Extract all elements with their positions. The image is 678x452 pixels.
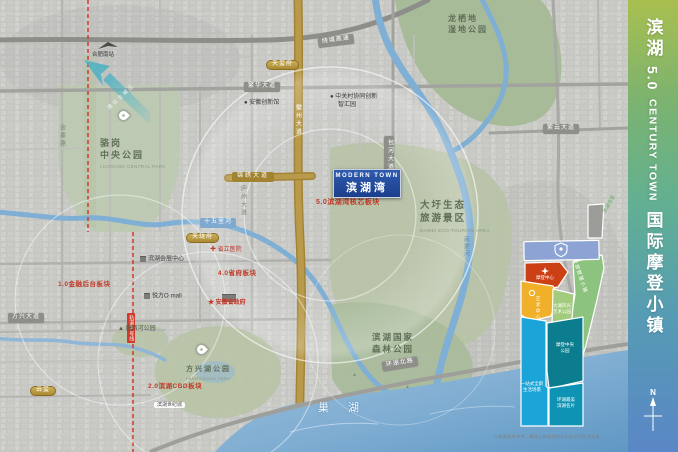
road-name-huizhou: 徽州大道 [293, 104, 301, 136]
park-label-luogang-en: LUOGANG CENTRAL PARK [100, 164, 166, 170]
title-number: 5.0 [645, 66, 661, 91]
lake-label: 巢 湖 [318, 402, 367, 416]
title-sidebar: 滨湖5.0CENTURY TOWN国际摩登小镇 N [628, 0, 678, 452]
road-badge-ziyun: 紫云大道 [543, 124, 579, 134]
park-label-forest-1: 滨湖国家 [372, 332, 414, 343]
branded-badge-tianlongfu: 天珑府 [186, 233, 219, 243]
poi-zgc-2: 智汇园 [338, 102, 356, 110]
park-label-daxu-2: 旅游景区 [420, 213, 466, 225]
poi-mall: 悦方O·mall [144, 293, 182, 301]
road-badge-fanhua: 繁华大道 [244, 82, 280, 92]
inset-caption: 示意图仅供参考，最终以政府规划及实际交付信息为准 [494, 433, 623, 439]
tree-icon: ▲ [352, 372, 357, 378]
city-map: 通往主城区 合肥南站 绕城高速 紫云大道 繁华大道 锦绣大道 环湖北路 方兴大道… [0, 0, 628, 452]
poi-government: ★ 安徽省政府 [208, 300, 246, 308]
title-zh-1: 滨湖 [644, 18, 663, 60]
title-zh-2: 国际摩登小镇 [644, 211, 663, 337]
compass: N [642, 388, 664, 438]
north-arrow-icon [642, 397, 664, 433]
road-badge-fangxing: 方兴大道 [8, 313, 44, 323]
map-poster: 通往主城区 合肥南站 绕城高速 紫云大道 繁华大道 锦绣大道 环湖北路 方兴大道… [0, 0, 678, 452]
inset-block-cyan [521, 317, 548, 426]
branded-badge-yunxi: 云玺 [30, 386, 56, 396]
park-label-daxu-1: 大圩生态 [420, 200, 466, 212]
river-label-shiwuli: 十五里河 [200, 218, 236, 228]
building-icon [140, 256, 146, 262]
sector-label-2: 2.0滨湖CBD板块 [148, 383, 202, 391]
sector-label-1: 1.0金融后台板块 [58, 281, 111, 289]
project-name-cn: 滨湖湾 [334, 179, 400, 195]
poi-hospital: ✚ 省立医院 [210, 247, 242, 255]
inset-label-cyan: 一站式全龄生活场景 [512, 381, 552, 393]
park-label-forest-2: 森林公园 [372, 344, 414, 355]
building-icon [144, 293, 150, 299]
hospital-cross-icon: ✚ 省立医院 [210, 247, 242, 253]
park-label-daxu-en: DAWEI ECO-TOURISM AREA [420, 228, 490, 234]
compass-n-label: N [642, 388, 664, 397]
inset-label-red: 摩登中心 [528, 275, 562, 281]
inset-label-teal: 摩登中央公园 [547, 342, 583, 354]
road-name-jinzhai: 金寨路 [57, 124, 65, 148]
project-badge: MODERN TOWN 滨湖湾 [333, 169, 401, 198]
poi-station-label: 合肥南站 [92, 52, 114, 59]
park-label-tangxihe: ▲ 塘西河公园 [118, 326, 156, 334]
poi-century-town: 滨湖世纪城 [154, 402, 185, 408]
park-label-luogang-1: 骆岗 [100, 138, 122, 149]
park-label-luogang-2: 中央公园 [100, 150, 144, 161]
park-label-longxidi-1: 龙栖地 [448, 14, 478, 24]
poi-expo-center: 滨湖会展中心 [140, 256, 184, 264]
sector-label-5-project: 5.0滨湖湾核芯板块 [316, 199, 380, 208]
inset-label-yellow: 艺术中心 [534, 296, 541, 320]
poi-zgc-1: ● 中关村协同创新 [330, 94, 377, 102]
park-label-fangxinghu: 方兴湖公园 [186, 366, 231, 375]
inset-label-midgreen: 大湖风光艺术公园 [546, 303, 578, 315]
inset-block-grey [588, 204, 604, 238]
park-label-fangxinghu-en: FANGXINGHU PARK [186, 376, 230, 381]
branded-badge-tianxifu: 天玺府 [266, 60, 299, 70]
tree-icon: ▲ [405, 384, 410, 390]
sector-label-4: 4.0省府板块 [218, 270, 257, 278]
inset-label-bottomteal: 环湖最美滨湖名片 [548, 397, 584, 409]
river-label-nanfei: 南淝河 [461, 236, 469, 257]
poster-title: 滨湖5.0CENTURY TOWN国际摩登小镇 [641, 18, 666, 337]
title-en: CENTURY TOWN [647, 99, 659, 202]
road-badge-jinxiu: 锦绣大道 [232, 172, 274, 182]
park-label-longxidi-2: 湿地公园 [448, 25, 488, 35]
poi-innovation-hall: ● 安徽创新馆 [244, 100, 279, 108]
road-name-luzhou: 庐州大道 [238, 185, 246, 217]
